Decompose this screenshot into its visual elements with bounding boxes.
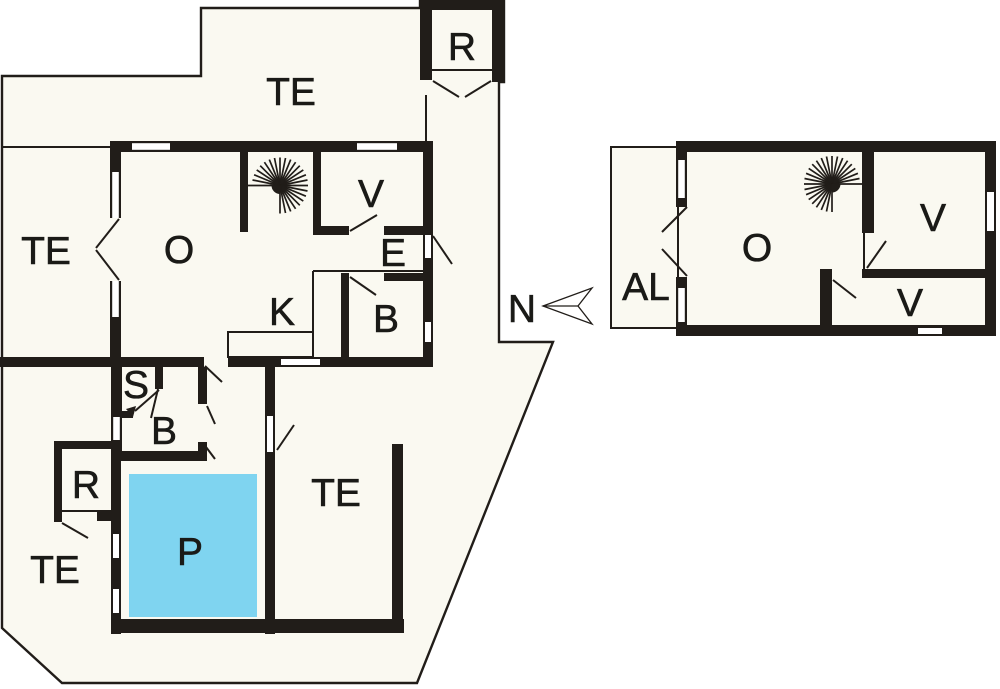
svg-text:AL: AL [622, 266, 670, 309]
svg-text:R: R [448, 26, 476, 69]
svg-text:S: S [123, 364, 149, 407]
svg-text:R: R [72, 464, 100, 507]
svg-text:TE: TE [21, 230, 71, 273]
svg-text:V: V [920, 197, 946, 240]
svg-text:P: P [177, 531, 203, 574]
svg-text:O: O [742, 227, 772, 270]
svg-text:V: V [897, 282, 923, 325]
svg-text:B: B [373, 298, 399, 341]
svg-text:N: N [508, 288, 536, 331]
svg-text:K: K [269, 291, 295, 334]
svg-text:V: V [358, 173, 384, 216]
svg-text:TE: TE [30, 549, 80, 592]
svg-text:E: E [380, 232, 406, 275]
svg-text:TE: TE [311, 472, 361, 515]
svg-text:B: B [151, 410, 177, 453]
svg-text:O: O [164, 229, 194, 272]
svg-text:TE: TE [266, 71, 316, 114]
